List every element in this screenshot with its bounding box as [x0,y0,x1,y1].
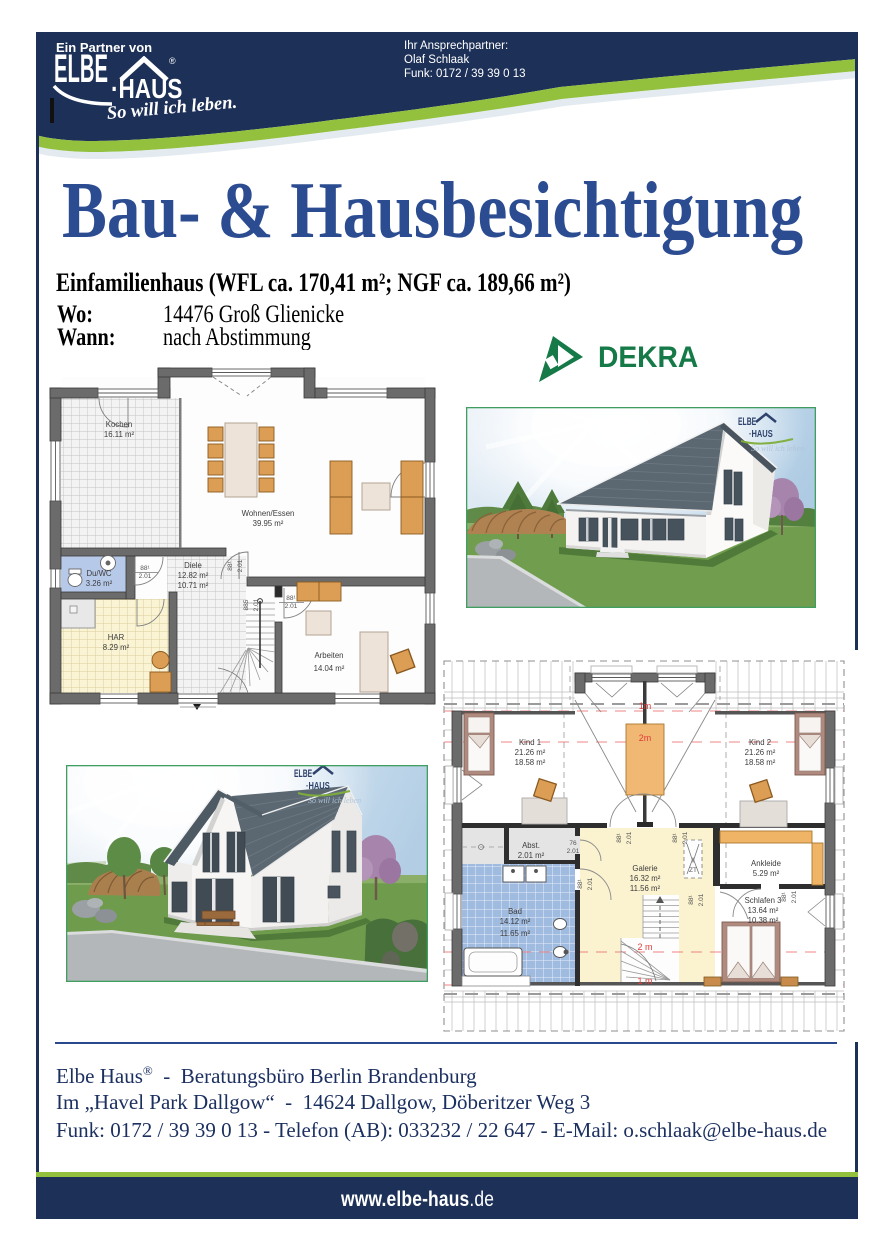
svg-text:2.01: 2.01 [626,831,633,844]
svg-text:So will ich leben: So will ich leben [308,796,361,805]
svg-text:88¹: 88¹ [140,565,150,572]
svg-text:885: 885 [243,599,250,610]
svg-text:ELBE: ELBE [738,415,756,427]
svg-text:2.01: 2.01 [791,890,798,903]
svg-text:18.58 m²: 18.58 m² [515,758,546,767]
svg-text:2.01: 2.01 [253,598,260,611]
svg-text:11.65 m²: 11.65 m² [500,929,531,938]
svg-text:8.29 m²: 8.29 m² [103,643,130,652]
svg-text:39.95 m²: 39.95 m² [253,519,284,528]
svg-text:Du/WC: Du/WC [86,569,111,578]
svg-text:2 m: 2 m [637,942,652,952]
svg-text:88¹: 88¹ [616,832,623,842]
svg-text:10.71 m²: 10.71 m² [178,581,209,590]
svg-text:2.01: 2.01 [285,603,298,610]
svg-text:HAR: HAR [108,633,125,642]
svg-text:2.01: 2.01 [698,893,705,906]
svg-text:2.01: 2.01 [237,559,244,572]
svg-text:16.32 m²: 16.32 m² [630,874,661,883]
svg-text:Ankleide: Ankleide [751,859,781,868]
svg-text:Bad: Bad [508,907,522,916]
svg-text:2.01 m²: 2.01 m² [518,851,545,860]
svg-text:·HAUS: ·HAUS [306,780,330,791]
svg-text:21.26 m²: 21.26 m² [745,748,776,757]
svg-text:So will ich leben: So will ich leben [751,444,804,453]
svg-text:Abst.: Abst. [522,841,540,850]
svg-text:88¹: 88¹ [688,894,695,904]
svg-text:14.12 m²: 14.12 m² [500,917,531,926]
svg-text:Wohnen/Essen: Wohnen/Essen [242,509,295,518]
svg-text:88¹: 88¹ [577,878,584,888]
svg-text:1 m: 1 m [637,976,652,986]
svg-text:3.26 m²: 3.26 m² [86,579,113,588]
svg-text:Kochen: Kochen [106,420,132,429]
svg-text:2.01: 2.01 [567,848,580,855]
svg-text:2.01: 2.01 [139,573,152,580]
svg-text:2m: 2m [639,733,652,743]
svg-text:1m: 1m [639,701,652,711]
svg-text:Schlafen 3: Schlafen 3 [745,896,782,905]
svg-text:Galerie: Galerie [632,864,657,873]
svg-text:ZT: ZT [689,867,697,874]
svg-text:88¹: 88¹ [227,560,234,570]
svg-text:DEKRA: DEKRA [598,341,698,374]
svg-text:10.38 m²: 10.38 m² [748,916,779,925]
svg-text:13.64 m²: 13.64 m² [748,906,779,915]
svg-text:14.04 m²: 14.04 m² [314,664,345,673]
svg-text:Kind 2: Kind 2 [749,738,771,747]
svg-text:21.26 m²: 21.26 m² [515,748,546,757]
svg-text:12.82 m²: 12.82 m² [178,571,209,580]
svg-text:2.01: 2.01 [682,831,689,844]
svg-text:5.29 m²: 5.29 m² [753,869,780,878]
svg-text:2.01: 2.01 [587,877,594,890]
svg-text:Diele: Diele [184,561,202,570]
svg-text:88¹: 88¹ [672,832,679,842]
svg-text:·HAUS: ·HAUS [749,428,773,439]
svg-text:88¹: 88¹ [286,595,296,602]
svg-text:16.11 m²: 16.11 m² [104,430,135,439]
svg-text:Kind 1: Kind 1 [519,738,541,747]
svg-text:ELBE: ELBE [294,767,312,779]
svg-text:18.58 m²: 18.58 m² [745,758,776,767]
svg-text:Arbeiten: Arbeiten [314,651,343,660]
svg-text:88¹: 88¹ [781,891,788,901]
svg-text:76: 76 [569,840,577,847]
svg-text:11.56 m²: 11.56 m² [630,884,661,893]
